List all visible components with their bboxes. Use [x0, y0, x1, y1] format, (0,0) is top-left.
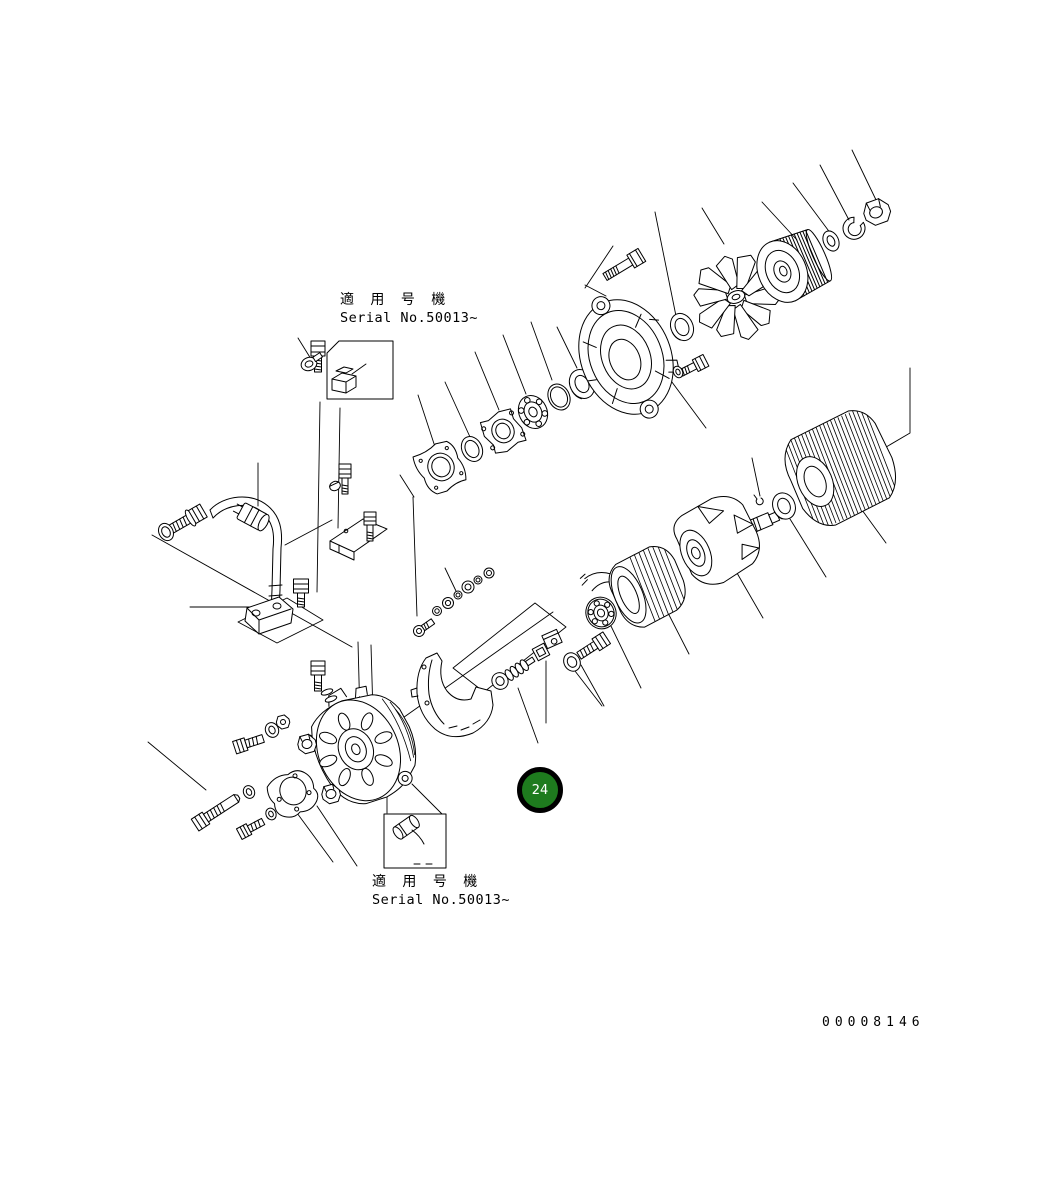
terminal-block-drawing [245, 597, 293, 634]
retaining-clip-drawing [754, 495, 763, 505]
serial-applicability-label-top: 適 用 号 機 Serial No.50013~ [340, 292, 478, 326]
rotor-drawing [666, 477, 794, 593]
washer-set-drawing [433, 568, 495, 616]
bolt-drawing [233, 732, 266, 754]
connector-drawing [332, 367, 356, 393]
washer-drawing [241, 784, 256, 800]
connector-cylinder-drawing [231, 500, 271, 533]
bolt-drawing [294, 579, 309, 607]
collar-drawing [666, 310, 697, 345]
brush-holder-drawing [411, 653, 493, 737]
clip-drawing [328, 480, 342, 493]
serial-number-text: Serial No.50013~ [372, 892, 510, 909]
long-bolt-drawing [191, 791, 242, 831]
seal-ring-drawing [457, 433, 486, 465]
lock-washer-drawing [840, 214, 868, 242]
nut-drawing [861, 196, 894, 227]
applicability-jp-text: 適 用 号 機 [340, 292, 478, 310]
condenser-drawing [391, 814, 432, 864]
part-callout-badge[interactable]: 24 [517, 767, 563, 813]
serial-applicability-label-bottom: 適 用 号 機 Serial No.50013~ [372, 874, 510, 908]
bolt-drawing [575, 632, 610, 662]
bolt-drawing [311, 661, 325, 691]
screw-drawing [411, 617, 436, 639]
applicability-jp-text: 適 用 号 機 [372, 874, 510, 892]
serial-number-text: Serial No.50013~ [340, 310, 478, 327]
mounting-plate-drawing [330, 519, 387, 560]
bolt-drawing [339, 464, 351, 494]
stator-drawing [774, 402, 907, 534]
part-callout-number: 24 [532, 783, 549, 798]
parts-diagram-page: 適 用 号 機 Serial No.50013~ 適 用 号 機 Serial … [0, 0, 1061, 1180]
bolt-drawing [236, 816, 265, 839]
drawing-number: 00008146 [822, 1015, 925, 1030]
brush-spring-drawing [489, 652, 539, 692]
exploded-view-drawing [0, 0, 1061, 1180]
